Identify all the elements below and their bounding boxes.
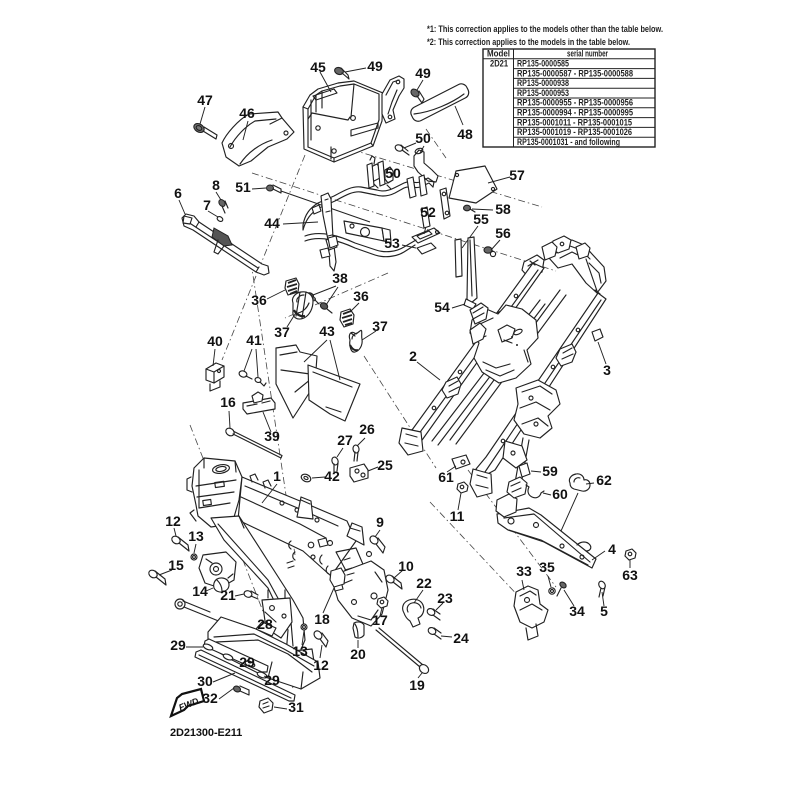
svg-text:8: 8 xyxy=(212,177,220,193)
svg-text:59: 59 xyxy=(542,463,558,479)
svg-text:23: 23 xyxy=(437,590,453,606)
svg-text:2: 2 xyxy=(409,348,417,364)
svg-text:37: 37 xyxy=(372,318,388,334)
svg-text:28: 28 xyxy=(257,616,273,632)
svg-text:37: 37 xyxy=(274,324,290,340)
svg-text:RP135-0000585: RP135-0000585 xyxy=(517,59,569,69)
svg-text:18: 18 xyxy=(314,611,330,627)
svg-text:RP135-0001019 - RP135-0001026: RP135-0001019 - RP135-0001026 xyxy=(517,127,632,137)
svg-text:*2: This correction applies to: *2: This correction applies to the model… xyxy=(427,37,630,48)
svg-text:RP135-0001011 - RP135-0001015: RP135-0001011 - RP135-0001015 xyxy=(517,117,632,127)
svg-text:46: 46 xyxy=(239,105,255,121)
svg-text:43: 43 xyxy=(319,323,335,339)
svg-text:53: 53 xyxy=(384,235,400,251)
svg-text:35: 35 xyxy=(539,559,555,575)
svg-text:serial number: serial number xyxy=(567,49,608,59)
svg-text:RP135-0001031 - and following: RP135-0001031 - and following xyxy=(517,137,620,147)
svg-text:9: 9 xyxy=(376,514,384,530)
svg-text:55: 55 xyxy=(473,211,489,227)
svg-text:39: 39 xyxy=(264,428,280,444)
svg-text:RP135-0000994 - RP135-0000995: RP135-0000994 - RP135-0000995 xyxy=(517,108,633,118)
svg-text:60: 60 xyxy=(552,486,568,502)
svg-text:47: 47 xyxy=(197,92,213,108)
svg-text:1: 1 xyxy=(273,468,281,484)
svg-text:62: 62 xyxy=(596,472,612,488)
svg-text:20: 20 xyxy=(350,646,366,662)
svg-text:29: 29 xyxy=(264,672,280,688)
svg-text:49: 49 xyxy=(415,65,431,81)
svg-text:24: 24 xyxy=(453,630,469,646)
svg-text:27: 27 xyxy=(337,432,353,448)
svg-text:50: 50 xyxy=(385,165,401,181)
svg-text:40: 40 xyxy=(207,333,223,349)
svg-text:29: 29 xyxy=(170,637,186,653)
svg-text:7: 7 xyxy=(203,197,211,213)
svg-text:42: 42 xyxy=(324,468,340,484)
svg-text:33: 33 xyxy=(516,563,532,579)
svg-text:RP135-0000938: RP135-0000938 xyxy=(517,78,569,88)
svg-text:22: 22 xyxy=(416,575,432,591)
svg-text:2D21300-E211: 2D21300-E211 xyxy=(170,727,242,739)
svg-text:57: 57 xyxy=(509,167,525,183)
svg-text:26: 26 xyxy=(359,421,375,437)
svg-text:36: 36 xyxy=(251,292,267,308)
svg-text:50: 50 xyxy=(415,130,431,146)
svg-text:4: 4 xyxy=(608,541,616,557)
svg-text:61: 61 xyxy=(438,469,454,485)
svg-text:5: 5 xyxy=(600,603,608,619)
svg-text:3: 3 xyxy=(603,362,611,378)
svg-text:29: 29 xyxy=(239,654,255,670)
svg-text:Model: Model xyxy=(487,49,510,59)
svg-text:19: 19 xyxy=(409,677,425,693)
svg-text:54: 54 xyxy=(434,299,450,315)
svg-text:45: 45 xyxy=(310,59,326,75)
svg-text:11: 11 xyxy=(450,508,465,524)
svg-text:38: 38 xyxy=(332,270,348,286)
svg-text:56: 56 xyxy=(495,225,511,241)
svg-text:21: 21 xyxy=(220,587,236,603)
svg-text:14: 14 xyxy=(192,583,208,599)
svg-text:16: 16 xyxy=(220,394,236,410)
svg-text:44: 44 xyxy=(264,215,280,231)
svg-text:36: 36 xyxy=(353,288,369,304)
svg-text:12: 12 xyxy=(165,513,181,529)
svg-text:10: 10 xyxy=(398,558,414,574)
svg-text:13: 13 xyxy=(188,528,204,544)
svg-text:25: 25 xyxy=(377,457,393,473)
svg-text:15: 15 xyxy=(168,557,184,573)
svg-text:RP135-0000955 - RP135-0000956: RP135-0000955 - RP135-0000956 xyxy=(517,98,633,108)
svg-text:13: 13 xyxy=(292,643,308,659)
svg-text:2D21: 2D21 xyxy=(490,59,508,69)
svg-text:RP135-0000953: RP135-0000953 xyxy=(517,88,569,98)
svg-text:12: 12 xyxy=(313,657,329,673)
svg-text:58: 58 xyxy=(495,201,511,217)
svg-text:51: 51 xyxy=(235,179,251,195)
svg-text:32: 32 xyxy=(202,690,218,706)
svg-text:49: 49 xyxy=(367,58,383,74)
svg-text:48: 48 xyxy=(457,126,473,142)
svg-text:30: 30 xyxy=(197,673,213,689)
svg-text:31: 31 xyxy=(288,699,304,715)
svg-text:*1: This correction applies to: *1: This correction applies to the model… xyxy=(427,24,663,35)
svg-text:17: 17 xyxy=(372,612,388,628)
svg-text:34: 34 xyxy=(569,603,585,619)
svg-text:52: 52 xyxy=(420,204,436,220)
svg-text:41: 41 xyxy=(246,332,262,348)
svg-text:6: 6 xyxy=(174,185,182,201)
svg-text:63: 63 xyxy=(622,567,638,583)
svg-text:RP135-0000587 - RP135-0000588: RP135-0000587 - RP135-0000588 xyxy=(517,68,633,78)
